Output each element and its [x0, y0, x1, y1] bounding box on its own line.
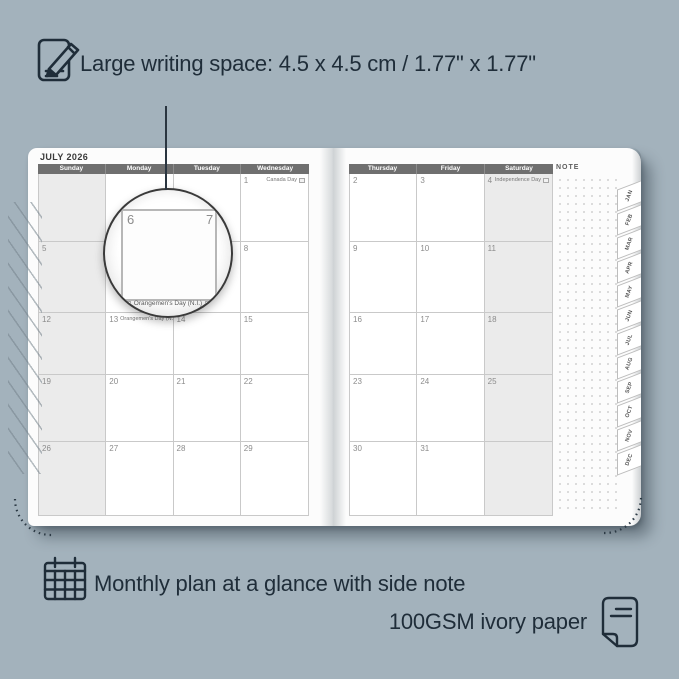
- calendar-grid-icon: [42, 556, 88, 602]
- page-gutter: [320, 148, 346, 526]
- corner-dotted-arc-right: [600, 494, 644, 536]
- calendar-cell: [39, 174, 106, 242]
- day-number: 26: [42, 444, 51, 453]
- month-tabs: JANFEBMARAPRMAYJUNJULAUGSEPOCTNOVDEC: [617, 185, 641, 473]
- calendar-cell: 23: [350, 375, 417, 442]
- notepad-pencil-icon: [36, 30, 86, 84]
- calendar-grid-right: ThursdayFridaySaturday 234Independence D…: [349, 164, 553, 516]
- day-number: 31: [420, 444, 429, 453]
- day-number: 2: [353, 176, 357, 185]
- day-number: 30: [353, 444, 362, 453]
- day-number: 27: [109, 444, 118, 453]
- calendar-cell: 31: [417, 442, 484, 515]
- top-annotation-text: Large writing space: 4.5 x 4.5 cm / 1.77…: [80, 51, 536, 77]
- calendar-cell: 28: [174, 442, 241, 515]
- calendar-cell: 4Independence Day: [485, 174, 552, 242]
- day-number: 16: [353, 315, 362, 324]
- day-number: 18: [488, 315, 497, 324]
- column-header-thursday: Thursday: [349, 164, 417, 174]
- magnified-holiday-text: Orangemen's Day (N.I.): [105, 300, 231, 307]
- magnified-day-number: 6: [127, 212, 134, 227]
- day-number: 5: [42, 244, 46, 253]
- calendar-cell: 22: [241, 375, 308, 442]
- day-number: 28: [177, 444, 186, 453]
- calendar-cell: 17: [417, 313, 484, 375]
- day-number: 8: [244, 244, 248, 253]
- day-number: 9: [353, 244, 357, 253]
- day-number: 13: [109, 315, 118, 324]
- page-edge-hatch: [8, 202, 42, 474]
- calendar-cell: 24: [417, 375, 484, 442]
- calendar-cell: 16: [350, 313, 417, 375]
- calendar-cell: 8: [241, 242, 308, 313]
- month-title: JULY 2026: [40, 152, 88, 162]
- callout-connector-line: [165, 106, 167, 190]
- day-number: 15: [244, 315, 253, 324]
- day-number: 17: [420, 315, 429, 324]
- column-header-wednesday: Wednesday: [241, 164, 309, 174]
- day-number: 21: [177, 377, 186, 386]
- flag-icon: [125, 301, 131, 306]
- day-number: 22: [244, 377, 253, 386]
- calendar-cell: 9: [350, 242, 417, 313]
- flag-icon: [543, 178, 549, 183]
- calendar-cell: [485, 442, 552, 515]
- calendar-cell: 2: [350, 174, 417, 242]
- column-header-friday: Friday: [417, 164, 485, 174]
- day-number: 10: [420, 244, 429, 253]
- calendar-cell: 13Orangemen's Day (N.I.): [106, 313, 173, 375]
- day-number: 12: [42, 315, 51, 324]
- planner-spread: JULY 2026 SundayMondayTuesdayWednesday 1…: [28, 148, 641, 526]
- bottom-annotation-line2: 100GSM ivory paper: [389, 609, 587, 635]
- day-number: 11: [488, 244, 496, 253]
- calendar-cell: 10: [417, 242, 484, 313]
- calendar-cell: 20: [106, 375, 173, 442]
- calendar-cell: 15: [241, 313, 308, 375]
- column-header-tuesday: Tuesday: [174, 164, 242, 174]
- magnified-day-number: 7: [206, 212, 213, 227]
- calendar-cell: 19: [39, 375, 106, 442]
- calendar-cell: 5: [39, 242, 106, 313]
- column-header-monday: Monday: [106, 164, 174, 174]
- product-infographic: Large writing space: 4.5 x 4.5 cm / 1.77…: [0, 0, 679, 679]
- calendar-cell: 14: [174, 313, 241, 375]
- day-number: 19: [42, 377, 51, 386]
- note-panel: NOTE: [556, 164, 617, 514]
- bottom-annotation-line1: Monthly plan at a glance with side note: [94, 571, 465, 597]
- day-number: 24: [420, 377, 429, 386]
- note-label: NOTE: [556, 164, 617, 171]
- calendar-cell: 18: [485, 313, 552, 375]
- calendar-cell: 30: [350, 442, 417, 515]
- corner-dotted-arc-left: [12, 496, 56, 538]
- calendar-cell: 25: [485, 375, 552, 442]
- flag-icon: [205, 301, 211, 306]
- holiday-label: Canada Day: [266, 176, 305, 184]
- day-number: 29: [244, 444, 253, 453]
- calendar-cell: 3: [417, 174, 484, 242]
- day-number: 4: [488, 176, 492, 185]
- magnifier-circle: 6 7 Orangemen's Day (N.I.): [103, 188, 233, 318]
- holiday-label: Independence Day: [495, 176, 549, 184]
- calendar-cell: 11: [485, 242, 552, 313]
- calendar-cell: 1Canada Day: [241, 174, 308, 242]
- dot-grid: [556, 176, 617, 514]
- column-header-saturday: Saturday: [485, 164, 553, 174]
- calendar-cell: 27: [106, 442, 173, 515]
- day-number: 20: [109, 377, 118, 386]
- writing-space-highlight: [121, 209, 217, 301]
- day-number: 23: [353, 377, 362, 386]
- paper-sheet-icon: [598, 596, 640, 648]
- day-number: 1: [244, 176, 248, 185]
- column-header-sunday: Sunday: [38, 164, 106, 174]
- calendar-cell: 29: [241, 442, 308, 515]
- day-number: 25: [488, 377, 497, 386]
- calendar-cell: 21: [174, 375, 241, 442]
- calendar-cell: 12: [39, 313, 106, 375]
- flag-icon: [299, 178, 305, 183]
- day-number: 3: [420, 176, 424, 185]
